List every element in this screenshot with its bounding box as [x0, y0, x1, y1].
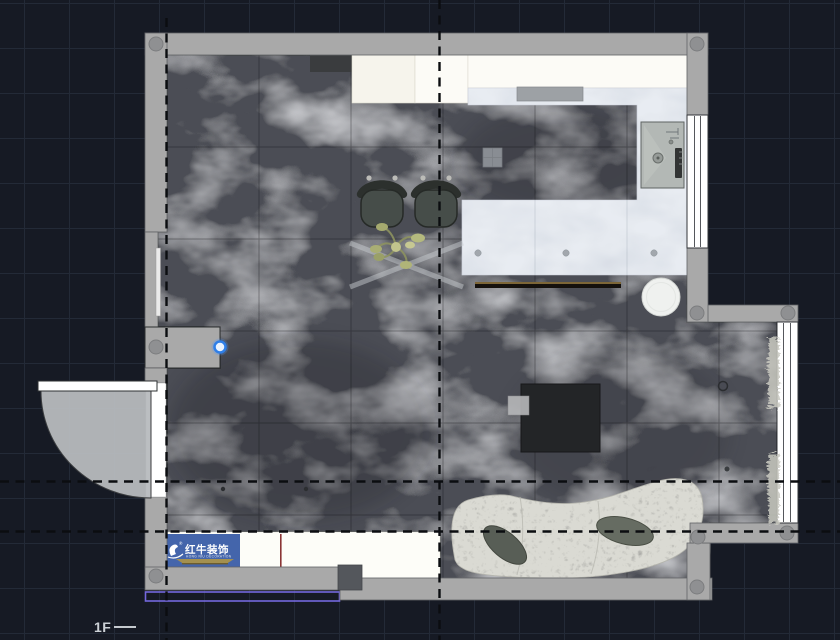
screw-icon [149, 569, 163, 583]
island-shelf-bar[interactable] [475, 282, 621, 288]
faucet-knob [669, 140, 673, 144]
stool-foot [392, 175, 397, 180]
screw-icon [690, 306, 704, 320]
wall-bottom-right[interactable] [340, 578, 712, 600]
range-hood[interactable] [310, 55, 352, 72]
stool-foot [420, 175, 425, 180]
cabinet-divider-line [280, 534, 282, 567]
plant-leaf [405, 242, 415, 249]
wall-bottom-left[interactable] [145, 567, 341, 590]
stool-foot [366, 175, 371, 180]
wall-top[interactable] [145, 33, 708, 55]
fridge[interactable] [352, 55, 415, 103]
floor-utility-box[interactable] [483, 148, 502, 167]
screw-icon [690, 37, 704, 51]
plant-leaf [400, 261, 412, 269]
screw-icon [149, 37, 163, 51]
design-viewport: ® 红牛装饰 HONG NIU DECORATION [0, 0, 840, 640]
floor-label-text: 1F [94, 619, 111, 635]
wall-selection-outline[interactable] [146, 592, 340, 601]
cooktop[interactable] [517, 87, 583, 101]
window-right-upper[interactable] [687, 115, 708, 248]
plant-leaf [374, 253, 385, 261]
screw-icon [149, 340, 163, 354]
watermark-gold-bar-edge [182, 563, 228, 564]
handle-dot[interactable] [215, 342, 226, 353]
plant-leaf [411, 234, 425, 243]
plant-center [391, 242, 401, 252]
door-leaf [38, 381, 157, 391]
plant-leaf [376, 223, 388, 231]
floor-level-label: 1F [94, 619, 136, 635]
wall-column-block[interactable] [338, 565, 362, 590]
tall-cabinet[interactable] [415, 55, 468, 103]
wall-left-upper[interactable] [145, 33, 167, 232]
selection-handle[interactable] [212, 339, 229, 356]
watermark-gold-bar [176, 559, 234, 564]
brand-tagline: HONG NIU DECORATION [186, 555, 232, 559]
stool-seat [361, 190, 403, 227]
screw-icon [690, 580, 704, 594]
sink-drain-center [657, 157, 660, 160]
sink-dispenser [675, 148, 682, 178]
floorplan-canvas: ® 红牛装饰 HONG NIU DECORATION [0, 0, 840, 640]
upper-cabinet-run[interactable] [468, 55, 687, 88]
screw-icon [780, 526, 794, 540]
round-table[interactable] [642, 278, 680, 316]
wall-left-lower[interactable] [145, 497, 167, 569]
plant-leaf [370, 245, 382, 253]
square-table[interactable] [521, 384, 600, 452]
window-right-bay[interactable] [777, 322, 798, 523]
stool-seat [415, 190, 457, 227]
kitchen-sink[interactable] [641, 122, 684, 188]
niche-track-line [156, 248, 161, 316]
brand-watermark: ® 红牛装饰 HONG NIU DECORATION [163, 534, 240, 567]
screw-icon [781, 306, 795, 320]
table-side-stool[interactable] [508, 396, 529, 415]
stool-foot [446, 175, 451, 180]
